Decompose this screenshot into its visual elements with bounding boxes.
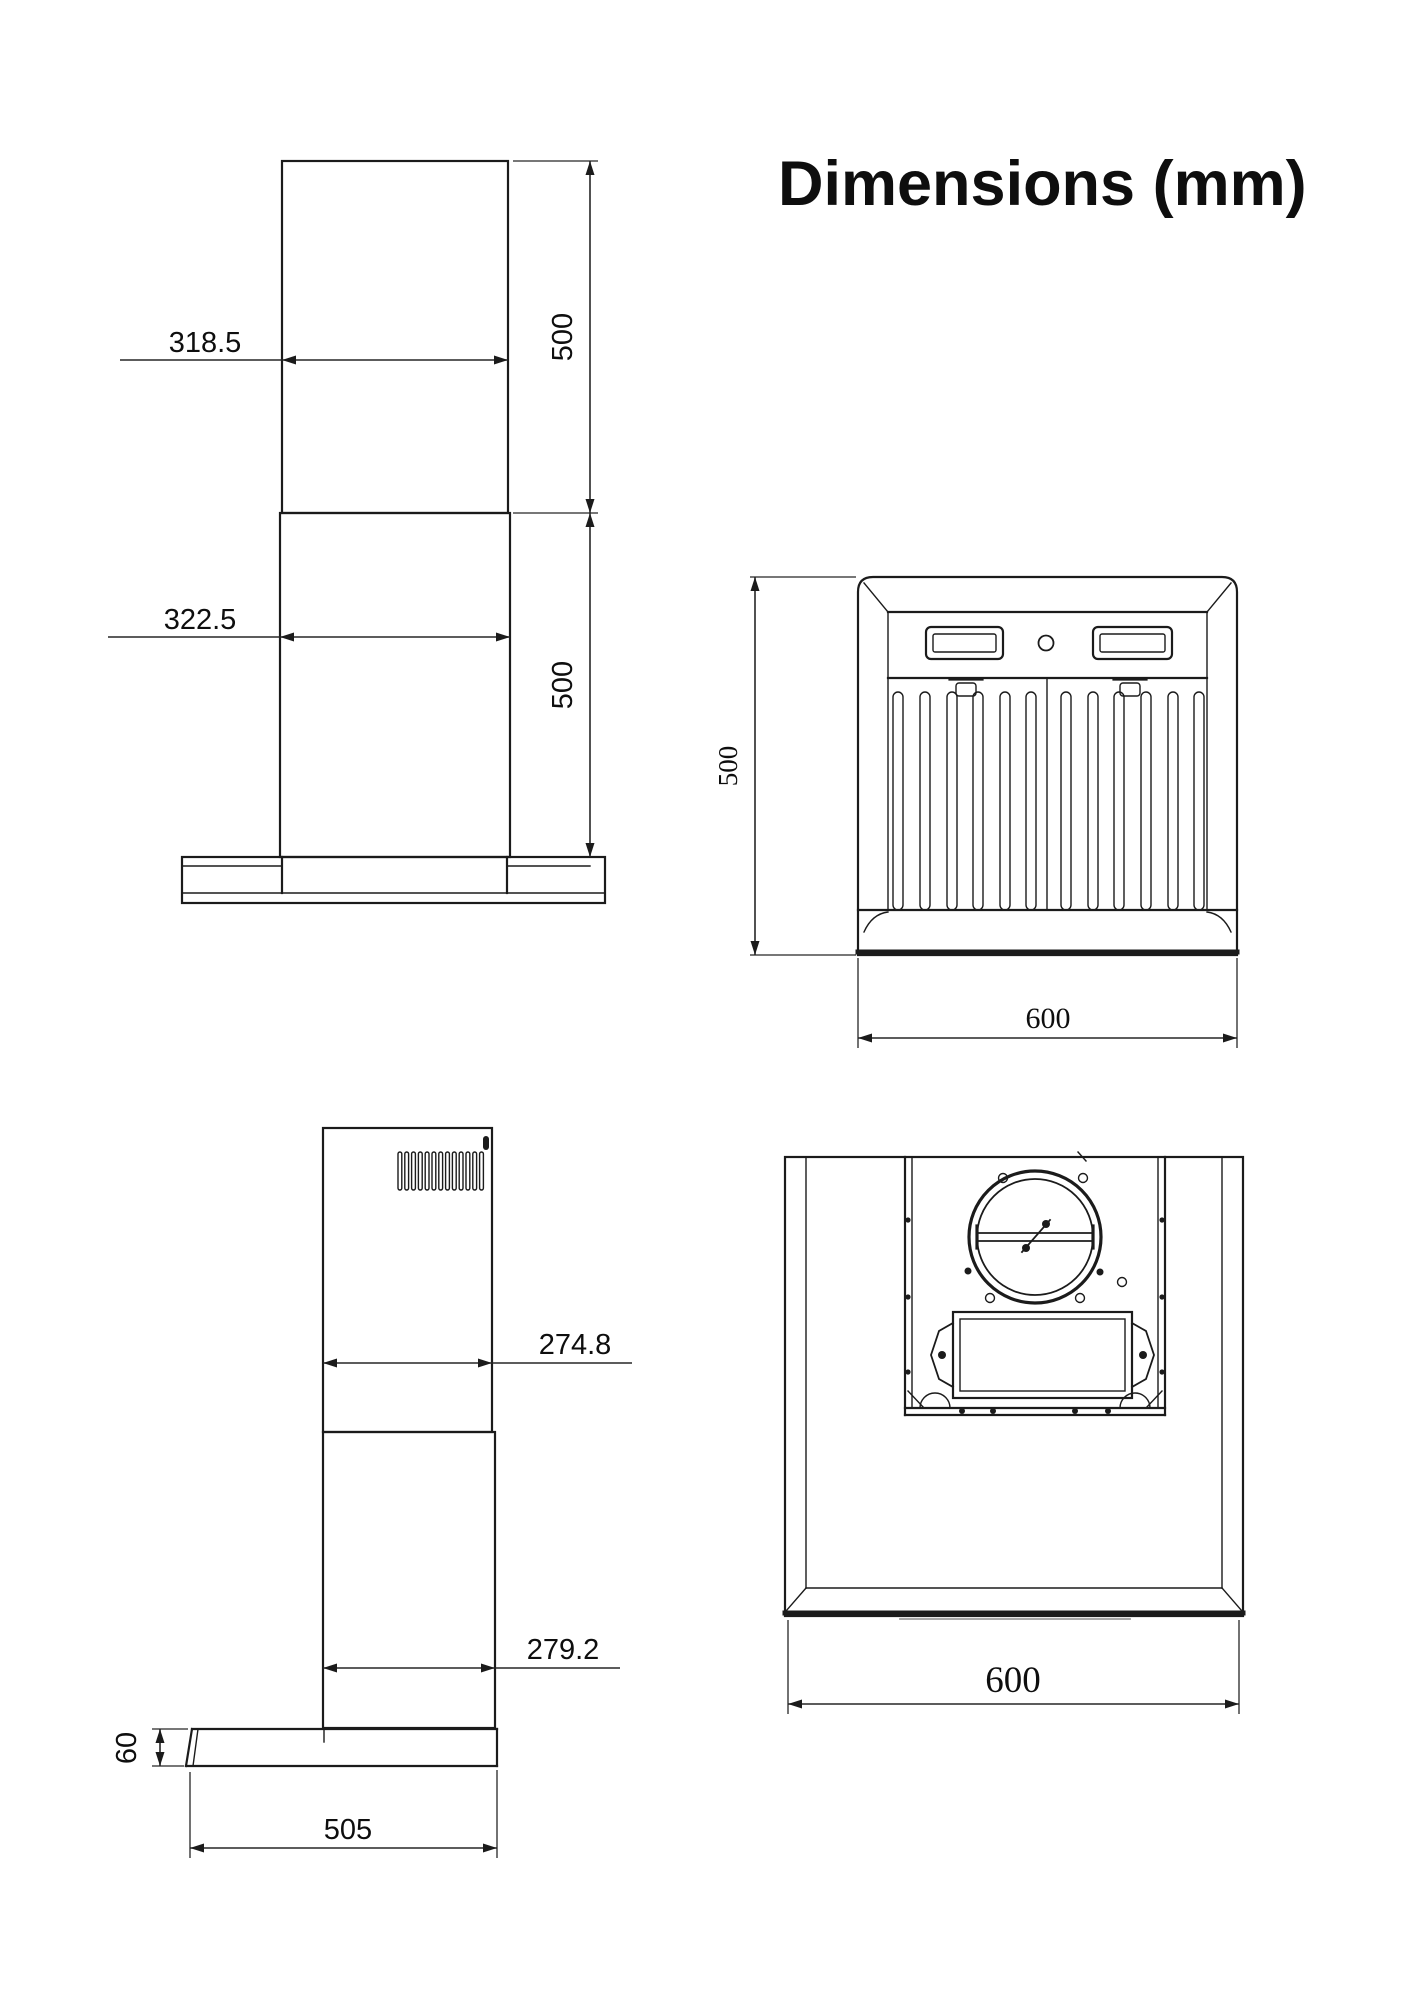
dim-label-upper-height: 500 [547,313,579,361]
vent-slot [446,1152,450,1190]
edge-screw [1159,1369,1164,1374]
baffle-vane [1026,692,1036,910]
baffle-vane [973,692,983,910]
screw-dot [990,1408,996,1414]
edge-screw [905,1294,910,1299]
chimney-upper-section [282,161,508,513]
vent-slot [425,1152,429,1190]
switch-bezel [926,627,1003,659]
baffle-vane [947,692,957,910]
screw-dot [1105,1408,1111,1414]
dim-label-hood-width: 600 [1026,1002,1071,1035]
housing-foot-arc-left [920,1393,950,1408]
chimney-lower-section [280,513,510,857]
baffle-vane [1168,692,1178,910]
view-hood-side: 274.8 279.2 60 505 [111,1128,632,1858]
switch-button [933,634,996,652]
dim-lower-height: 500 [547,513,590,857]
vent-slot [412,1152,416,1190]
technical-drawing: Dimensions (mm) 318.5 322.5 500 [0,0,1410,2000]
dim-label-lower-depth: 279.2 [527,1634,600,1666]
dim-label-base-depth: 505 [324,1814,372,1846]
hood-body-front [182,857,605,903]
vent-slot [452,1152,456,1190]
housing-corner-diag-left [908,1391,924,1408]
baffle-vane [1061,692,1071,910]
baffle-vane [1194,692,1204,910]
edge-screw [905,1217,910,1222]
dim-top-width: 600 [788,1620,1239,1714]
edge-screw [1159,1217,1164,1222]
hood-top-outline [785,1157,1243,1616]
vent-slots [398,1152,483,1190]
dim-lower-depth: 279.2 [323,1634,620,1668]
junction-box [931,1312,1154,1398]
screw-dot [1072,1408,1078,1414]
dim-label-hood-height: 500 [713,746,743,787]
pivot-dot [1042,1220,1050,1228]
junction-box-inner [960,1319,1125,1391]
dim-base-depth: 505 [190,1770,497,1858]
dim-label-top-width: 600 [985,1660,1041,1701]
corner-chamfer-left [864,583,888,612]
view-hood-top: 600 [785,1152,1243,1714]
slab-front-lip-inner [193,1729,198,1766]
housing-foot-arc-right [1120,1393,1150,1408]
housing-corner-diag-right [1146,1391,1162,1408]
rocker-switch-right [1093,627,1172,659]
vent-slot [405,1152,409,1190]
vent-slot [432,1152,436,1190]
screw-dot [959,1408,965,1414]
view-chimney-front: 318.5 322.5 500 500 [108,161,605,903]
page-title: Dimensions (mm) [778,149,1307,219]
vent-slot [439,1152,443,1190]
vent-slot [473,1152,477,1190]
dim-upper-width: 318.5 [120,327,508,360]
duct-collar [965,1171,1127,1303]
dim-label-upper-depth: 274.8 [539,1329,612,1361]
tab-screw [1139,1351,1147,1359]
drawing-page: Dimensions (mm) 318.5 322.5 500 [0,0,1410,2000]
screw-dot [1097,1269,1104,1276]
vent-slot [398,1152,402,1190]
clip-handle [956,683,976,696]
filter-clip-right [1114,679,1146,696]
junction-box-outer [953,1312,1132,1398]
vent-slot [480,1152,484,1190]
switch-button [1100,634,1165,652]
mounting-notch [483,1136,489,1150]
flare-right [1222,1588,1242,1611]
baffle-vane [920,692,930,910]
flare-left [786,1588,806,1611]
band-corner-arc-right [1207,912,1231,932]
corner-chamfer-right [1207,583,1231,612]
screw-hole [1076,1294,1085,1303]
tab-screw [938,1351,946,1359]
screw-hole [1118,1278,1127,1287]
baffle-vane [893,692,903,910]
view-hood-front: 500 600 [713,577,1237,1048]
pivot-dot [1022,1244,1030,1252]
dim-upper-depth: 274.8 [323,1329,632,1363]
slab-front-lip [186,1729,192,1766]
hood-body-side [186,1729,497,1766]
band-corner-arc-left [864,912,888,932]
switch-bezel [1093,627,1172,659]
screw-hole [1079,1174,1088,1183]
screw-dot [965,1268,972,1275]
edge-screw [1159,1294,1164,1299]
baffle-vane [1114,692,1124,910]
duct-housing [905,1157,1165,1415]
baffle-vane [1088,692,1098,910]
edge-screw [905,1369,910,1374]
dim-hood-width: 600 [858,958,1237,1048]
vent-slot [418,1152,422,1190]
dim-hood-height: 500 [713,577,856,955]
dim-base-height: 60 [111,1729,188,1766]
dim-label-lower-height: 500 [547,661,579,709]
baffle-vane [1000,692,1010,910]
rocker-switch-left [926,627,1003,659]
screw-hole [986,1294,995,1303]
baffle-vanes [893,692,1204,910]
indicator-lamp [1039,636,1054,651]
chimney-lower-side [323,1432,495,1728]
vent-slot [459,1152,463,1190]
dim-label-base-height: 60 [111,1732,143,1764]
dim-label-lower-width: 322.5 [164,604,237,636]
vent-slot [466,1152,470,1190]
dim-upper-height: 500 [513,161,598,513]
dim-label-upper-width: 318.5 [169,327,242,359]
baffle-vane [1141,692,1151,910]
dim-lower-width: 322.5 [108,604,510,637]
